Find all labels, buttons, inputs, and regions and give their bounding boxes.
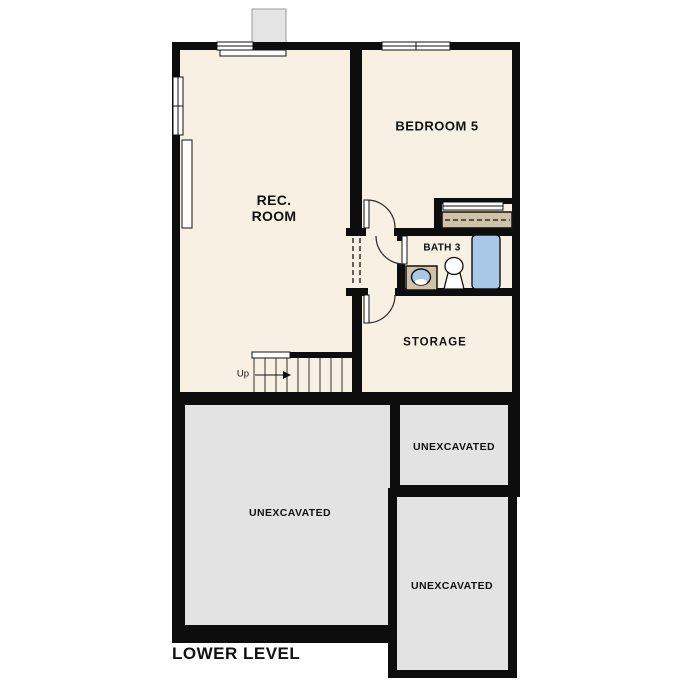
toilet-bowl xyxy=(445,258,463,275)
floorplan-lower-level: REC. ROOM BEDROOM 5 BATH 3 STORAGE UNEXC… xyxy=(0,0,687,687)
window-bedroom5 xyxy=(382,42,450,50)
window-rec-top xyxy=(217,42,253,50)
stairs-up-label: Up xyxy=(237,370,249,381)
floorplan-graphic xyxy=(0,0,687,687)
rec-room-label: REC. ROOM xyxy=(252,192,297,224)
toilet-base xyxy=(444,273,464,289)
closet xyxy=(442,202,512,228)
unexcavated-left-label: UNEXCAVATED xyxy=(249,507,331,519)
unexcavated-bottom-right-label: UNEXCAVATED xyxy=(411,580,493,592)
bath3-label: BATH 3 xyxy=(423,242,460,254)
sink-bowl-highlight xyxy=(415,279,427,285)
window-rec-left xyxy=(173,77,183,135)
fireplace-hearth xyxy=(220,50,286,56)
stair-rail xyxy=(252,352,290,358)
bedroom5-label: BEDROOM 5 xyxy=(395,120,478,135)
bathtub xyxy=(472,235,500,289)
unexcavated-top-right-label: UNEXCAVATED xyxy=(413,441,495,453)
window-rec-left-lower xyxy=(182,140,192,228)
plan-title: LOWER LEVEL xyxy=(172,644,300,664)
chimney xyxy=(252,9,286,43)
storage-label: STORAGE xyxy=(403,336,467,349)
